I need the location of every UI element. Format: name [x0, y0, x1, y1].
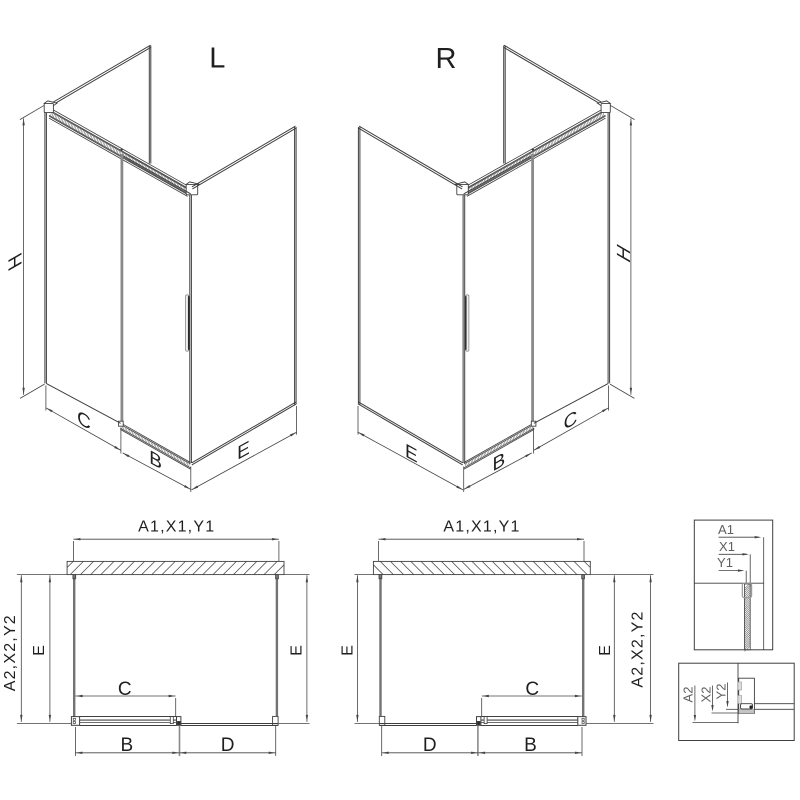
svg-text:Y1: Y1 — [717, 555, 733, 570]
svg-text:A2,X2,Y2: A2,X2,Y2 — [2, 614, 19, 691]
svg-text:D: D — [221, 735, 235, 756]
svg-text:E: E — [597, 645, 614, 656]
svg-text:E: E — [340, 645, 357, 656]
svg-text:A1: A1 — [718, 522, 734, 537]
svg-text:A2: A2 — [680, 687, 695, 703]
svg-text:E: E — [31, 645, 48, 656]
svg-text:E: E — [289, 645, 306, 656]
svg-text:A1,X1,Y1: A1,X1,Y1 — [443, 519, 520, 536]
svg-text:L: L — [209, 43, 225, 75]
svg-text:A1,X1,Y1: A1,X1,Y1 — [138, 519, 215, 536]
svg-text:A2,X2,Y2: A2,X2,Y2 — [629, 610, 646, 687]
svg-text:B: B — [524, 735, 537, 756]
svg-text:R: R — [436, 43, 457, 75]
svg-text:B: B — [121, 735, 134, 756]
svg-text:C: C — [118, 679, 132, 700]
svg-text:D: D — [423, 735, 437, 756]
svg-text:Y2: Y2 — [713, 684, 728, 700]
svg-text:X2: X2 — [698, 687, 713, 703]
svg-text:X1: X1 — [719, 539, 735, 554]
svg-text:C: C — [525, 679, 539, 700]
